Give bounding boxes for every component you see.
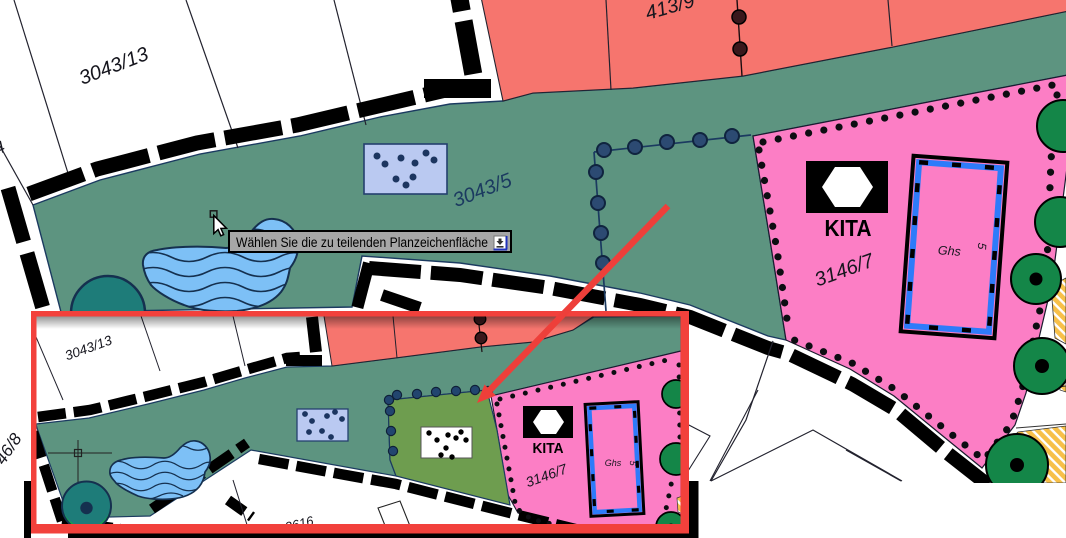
svg-text:KITA: KITA (825, 215, 872, 241)
svg-text:Ghs: Ghs (605, 458, 622, 468)
svg-text:Ghs: Ghs (937, 243, 961, 259)
svg-text:Wählen Sie die zu teilenden Pl: Wählen Sie die zu teilenden Planzeichenf… (236, 235, 488, 250)
svg-text:KITA: KITA (533, 441, 564, 457)
svg-text:5: 5 (975, 242, 989, 250)
